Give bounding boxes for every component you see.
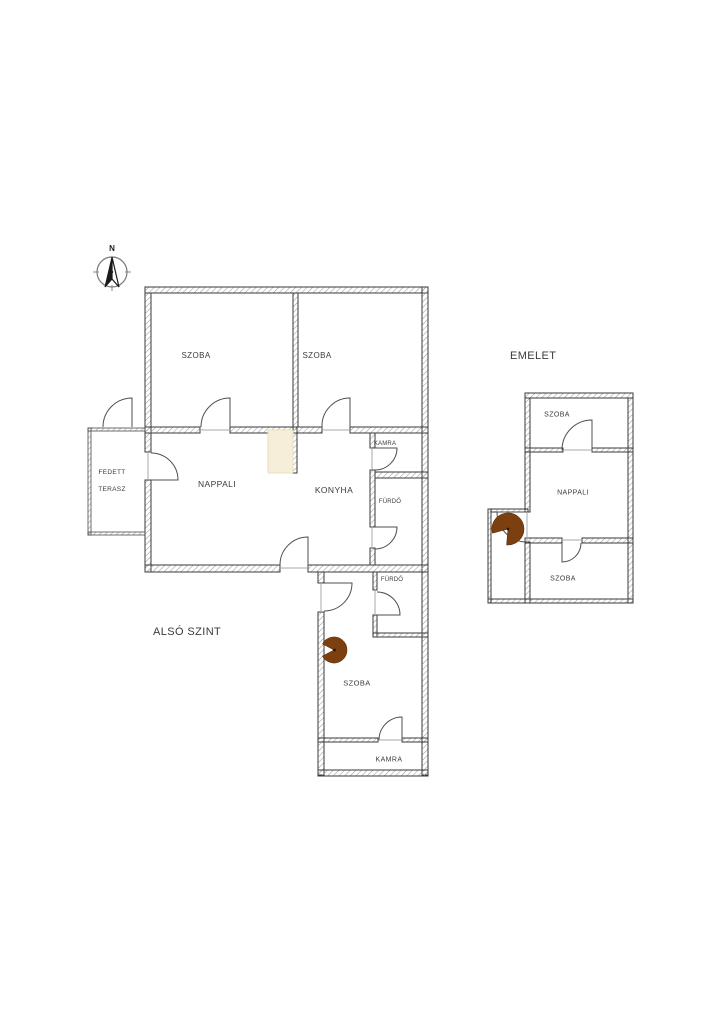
wall-segment bbox=[592, 448, 633, 452]
terrace-label-line2: TERASZ bbox=[98, 481, 125, 498]
room-label-nappali: NAPPALI bbox=[198, 480, 236, 489]
upper-floor-walls bbox=[488, 393, 633, 603]
chimney bbox=[268, 430, 293, 473]
room-label-konyha: KONYHA bbox=[315, 486, 353, 495]
door-furdo-lower bbox=[377, 592, 400, 615]
lower-floor-title: ALSÓ SZINT bbox=[153, 626, 221, 638]
stove-upper-pivot-dot bbox=[507, 528, 510, 531]
compass-pivot bbox=[111, 271, 113, 273]
room-label-upper-szoba-bottom: SZOBA bbox=[550, 576, 576, 583]
door-terrace bbox=[103, 398, 132, 427]
door-szoba-top-left bbox=[201, 398, 230, 427]
wall-segment bbox=[525, 448, 563, 452]
wall-segment bbox=[308, 565, 428, 572]
wall-segment bbox=[373, 572, 377, 590]
room-label-szoba-top-right: SZOBA bbox=[302, 352, 331, 360]
terrace-wall bbox=[88, 532, 145, 535]
wall-segment bbox=[525, 398, 530, 512]
wall-segment bbox=[293, 427, 297, 473]
wall-segment bbox=[402, 738, 428, 742]
room-label-szoba-top-left: SZOBA bbox=[181, 352, 210, 360]
room-label-furdo-upper: FÜRDŐ bbox=[379, 499, 401, 505]
wall-segment bbox=[350, 427, 428, 433]
door-upper-szoba-top bbox=[562, 420, 592, 450]
terrace-wall bbox=[88, 428, 91, 535]
wall-segment bbox=[373, 633, 428, 637]
stove-lower-pivot-dot bbox=[333, 649, 336, 652]
upper-floor-title: EMELET bbox=[510, 350, 556, 362]
wall-segment bbox=[525, 538, 562, 543]
compass-north-label: N bbox=[109, 244, 115, 253]
room-label-kamra-top: KAMRA bbox=[374, 441, 396, 447]
wall-segment bbox=[318, 738, 378, 742]
door-nappali-south bbox=[280, 537, 308, 565]
door-kamra-top bbox=[375, 448, 397, 470]
wall-segment bbox=[488, 509, 491, 603]
wall-segment bbox=[145, 427, 200, 433]
wall-segment bbox=[375, 472, 428, 478]
wall-segment bbox=[525, 393, 633, 398]
room-label-upper-nappali: NAPPALI bbox=[557, 490, 589, 497]
wall-segment bbox=[582, 538, 633, 543]
door-szoba-lower-exterior bbox=[324, 583, 352, 611]
floor-plan-canvas: N ALSÓ SZINT EMELET SZOBA SZOBA KAMRA NA… bbox=[0, 0, 723, 1024]
room-label-kamra-lower: KAMRA bbox=[376, 757, 403, 764]
compass-rose bbox=[93, 257, 131, 291]
wall-segment bbox=[422, 287, 428, 775]
wall-segment bbox=[145, 565, 280, 572]
terrace-wall bbox=[88, 428, 145, 431]
wall-segment bbox=[318, 572, 324, 583]
wall-segment bbox=[318, 770, 428, 776]
room-label-fedett-terasz: FEDETT TERASZ bbox=[98, 464, 125, 498]
wall-segment bbox=[488, 599, 633, 603]
lower-floor-walls bbox=[88, 287, 428, 776]
wall-segment bbox=[628, 398, 633, 603]
door-upper-szoba-bottom bbox=[562, 543, 581, 562]
door-nappali-terrace bbox=[151, 453, 178, 480]
door-kamra-lower bbox=[379, 717, 402, 740]
wall-segment bbox=[293, 293, 298, 427]
wall-segment bbox=[525, 542, 530, 603]
room-label-furdo-lower: FÜRDŐ bbox=[381, 577, 403, 583]
door-szoba-top-right bbox=[322, 398, 350, 427]
room-label-upper-szoba-top: SZOBA bbox=[544, 412, 570, 419]
door-furdo-upper bbox=[375, 527, 397, 549]
floor-plan-drawing bbox=[0, 0, 723, 1024]
wall-segment bbox=[370, 470, 375, 527]
wall-segment bbox=[145, 287, 428, 293]
terrace-label-line1: FEDETT bbox=[98, 464, 125, 481]
wall-segment bbox=[318, 612, 324, 775]
wall-segment bbox=[145, 480, 151, 572]
room-label-szoba-lower: SZOBA bbox=[343, 679, 370, 687]
wall-segment bbox=[370, 548, 375, 565]
